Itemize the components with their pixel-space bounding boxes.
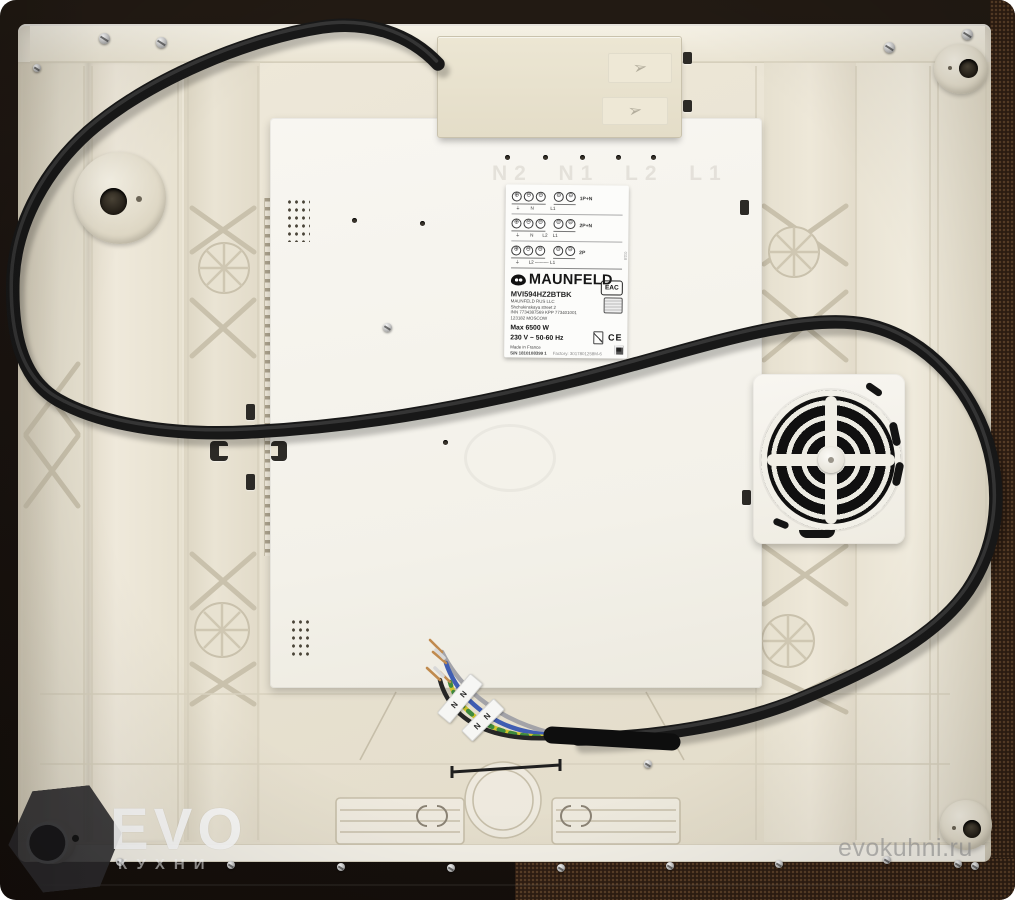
label-divider [511, 240, 622, 242]
screw-icon [971, 862, 979, 870]
terminal-screw-icon [565, 246, 575, 256]
embossed-terminal-text: N2 N1 L2 L1 [492, 162, 728, 186]
fan-hub [818, 447, 844, 473]
vent-slot [799, 530, 835, 538]
terminal-screw-icon [553, 246, 563, 256]
terminal-screws-icon [512, 191, 546, 204]
clip [740, 200, 749, 215]
datamatrix-icon [614, 346, 623, 355]
screw-icon [666, 862, 674, 870]
screw-icon [962, 29, 973, 40]
wiring-row-1: 1P+N [512, 189, 623, 205]
terminal-screw-icon [523, 219, 533, 229]
factory-number: Factory: 3017801258M-6 [553, 350, 602, 356]
maunfeld-logo-icon [511, 274, 526, 285]
terminal-screws-icon [554, 192, 576, 205]
evo-watermark-text: EVO [110, 796, 248, 863]
plate-hole [543, 155, 548, 160]
evo-watermark-subtext: КУХНИ [118, 856, 213, 873]
wiring-letters: ⏚ N L1 [516, 205, 623, 212]
terminal-screw-icon [535, 246, 545, 256]
screw-icon [644, 760, 652, 768]
plate-screw-icon [383, 323, 392, 332]
weee-bin-icon [593, 331, 603, 344]
terminal-screw-icon [535, 219, 545, 229]
screw-icon [156, 37, 167, 48]
wiring-row-2: 2P+N [511, 216, 622, 232]
wiring-letters: ⏚ N L2 L1 [515, 232, 622, 239]
terminal-screw-icon [565, 219, 575, 229]
wiring-tag: 2P [579, 250, 585, 256]
c-shaped-cutout [210, 441, 228, 461]
site-watermark: evokuhni.ru [838, 834, 973, 863]
plate-hole [443, 440, 448, 445]
wiring-tag: 2P+N [579, 223, 592, 229]
terminal-box: ➢ ➢ [437, 36, 682, 138]
clip [246, 474, 255, 490]
vent-dot-cluster [286, 198, 310, 242]
plate-hole [420, 221, 425, 226]
vent-slot [865, 381, 884, 397]
voltage-rating: 230 V ~ 50-60 Hz [510, 333, 621, 344]
terminal-screw-icon [553, 219, 563, 229]
screw-icon [337, 863, 345, 871]
screw-icon [447, 864, 455, 872]
clip [683, 100, 692, 112]
ce-mark: CE [607, 331, 623, 342]
mounting-boss [934, 44, 988, 94]
ground-terminal-icon [512, 191, 522, 201]
terminal-screw-icon [524, 192, 534, 202]
cert-mark-icon [604, 297, 623, 313]
terminal-screw-icon [554, 192, 564, 202]
embossed-arrow-icon: ➢ [602, 97, 668, 125]
clip [742, 490, 751, 505]
plate-hole [352, 218, 357, 223]
ground-terminal-icon [511, 218, 521, 228]
cooktop-underside-photo: N2 N1 L2 L1 ➢ ➢ [0, 0, 1015, 900]
plate-hole [651, 155, 656, 160]
d-shaped-cutout [271, 441, 287, 461]
clip [246, 404, 255, 420]
cooling-fan-module [753, 374, 905, 544]
serial-number: S/N 1810108399 1 [510, 350, 547, 356]
wiring-tag: 1P+N [580, 196, 593, 202]
address-line: 123182 MOSCOW [510, 315, 621, 322]
terminal-screw-icon [523, 246, 533, 256]
screw-icon [33, 64, 41, 72]
plate-hole [505, 155, 510, 160]
terminal-screws-icon [511, 245, 545, 258]
screw-icon [557, 864, 565, 872]
screw-icon [884, 42, 895, 53]
terminal-screws-icon [511, 218, 545, 231]
wiring-letters: ⏚ L2 ——— L1 [515, 259, 622, 266]
label-divider [511, 267, 622, 269]
plate-hole [580, 155, 585, 160]
label-side-code: 0118 [623, 252, 628, 261]
terminal-screw-icon [566, 192, 576, 202]
label-divider [512, 213, 623, 215]
eac-mark: EAC [601, 280, 623, 295]
terminal-screws-icon [553, 246, 575, 259]
screw-icon [775, 860, 783, 868]
power-rating: Max 6500 W [510, 323, 621, 334]
wiring-row-3: 2P [511, 243, 622, 259]
clip [683, 52, 692, 64]
screw-icon [99, 33, 110, 44]
rating-label: 1P+N ⏚ N L1 2P+N ⏚ N L2 L1 [504, 184, 629, 358]
embossed-arrow-icon: ➢ [608, 53, 672, 83]
fan-grille-icon [761, 390, 901, 530]
terminal-screw-icon [536, 192, 546, 202]
ground-terminal-icon [511, 245, 521, 255]
vent-slot [772, 517, 789, 529]
plate-embossed-circle [464, 424, 556, 492]
plate-hole [616, 155, 621, 160]
terminal-screws-icon [553, 219, 575, 232]
mounting-boss [74, 152, 166, 244]
vent-dot-cluster [290, 618, 312, 656]
